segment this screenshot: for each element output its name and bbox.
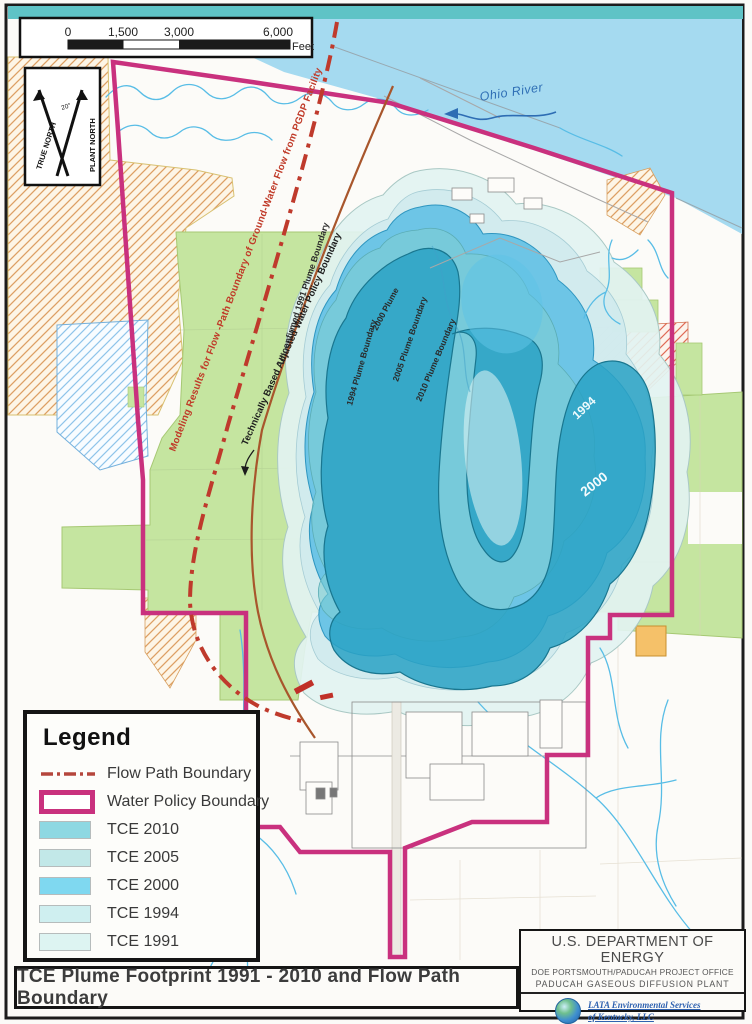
orange-parcel (636, 626, 666, 656)
legend-item-tce-1991: TCE 1991 (27, 928, 256, 956)
tce-2000-swatch (39, 877, 101, 895)
water-policy-outline-sample (39, 790, 101, 814)
scale-tick-3000: 3,000 (164, 25, 194, 39)
legend-item-label: TCE 2005 (107, 849, 179, 867)
north-arrow-box: 20° TRUE NORTH PLANT NORTH (25, 68, 100, 185)
contractor-logo-row: LATA Environmental Services of Kentucky,… (521, 992, 744, 1024)
legend-item-label: Flow Path Boundary (107, 765, 251, 783)
green-area-notch (688, 492, 742, 544)
agency-box: U.S. DEPARTMENT OF ENERGY DOE PORTSMOUTH… (519, 929, 746, 1012)
contractor-name: LATA Environmental Services of Kentucky,… (588, 999, 701, 1023)
agency-plant: PADUCAH GASEOUS DIFFUSION PLANT (521, 979, 744, 989)
map-title: TCE Plume Footprint 1991 - 2010 and Flow… (17, 966, 516, 1010)
legend-item-tce-2010: TCE 2010 (27, 816, 256, 844)
tce-2010-swatch (39, 821, 101, 839)
legend-box: Legend Flow Path Boundary Water Policy B… (23, 710, 260, 962)
scale-unit-label: Feet (292, 41, 314, 53)
flow-path-line-sample (39, 769, 101, 779)
agency-name: U.S. DEPARTMENT OF ENERGY (521, 934, 744, 966)
legend-title: Legend (43, 724, 256, 752)
legend-item-flow-path: Flow Path Boundary (27, 760, 256, 788)
contractor-name-line1: LATA Environmental Services (588, 1000, 701, 1010)
scale-tick-1500: 1,500 (108, 25, 138, 39)
tce-1991-swatch (39, 933, 101, 951)
scale-bar: 0 1,500 3,000 6,000 Feet (20, 18, 314, 57)
legend-item-label: TCE 2000 (107, 877, 179, 895)
scale-tick-0: 0 (65, 25, 72, 39)
legend-item-tce-2000: TCE 2000 (27, 872, 256, 900)
contractor-name-line2: of Kentucky, LLC (588, 1012, 654, 1022)
agency-office: DOE PORTSMOUTH/PADUCAH PROJECT OFFICE (521, 967, 744, 977)
tce-1994-swatch (39, 905, 101, 923)
legend-item-label: TCE 1994 (107, 905, 179, 923)
map-page: Ohio River Modeling Results for Flow -Pa… (0, 0, 752, 1024)
legend-item-label: TCE 1991 (107, 933, 179, 951)
legend-item-label: Water Policy Boundary (107, 793, 269, 811)
legend-item-label: TCE 2010 (107, 821, 179, 839)
scale-tick-6000: 6,000 (263, 25, 293, 39)
globe-logo-icon (555, 998, 581, 1024)
legend-item-tce-1994: TCE 1994 (27, 900, 256, 928)
map-title-bar: TCE Plume Footprint 1991 - 2010 and Flow… (14, 966, 519, 1009)
legend-item-water-policy: Water Policy Boundary (27, 788, 256, 816)
tce-2005-swatch (39, 849, 101, 867)
legend-item-tce-2005: TCE 2005 (27, 844, 256, 872)
plant-north-label: PLANT NORTH (88, 118, 97, 172)
road-vertical (392, 702, 401, 958)
